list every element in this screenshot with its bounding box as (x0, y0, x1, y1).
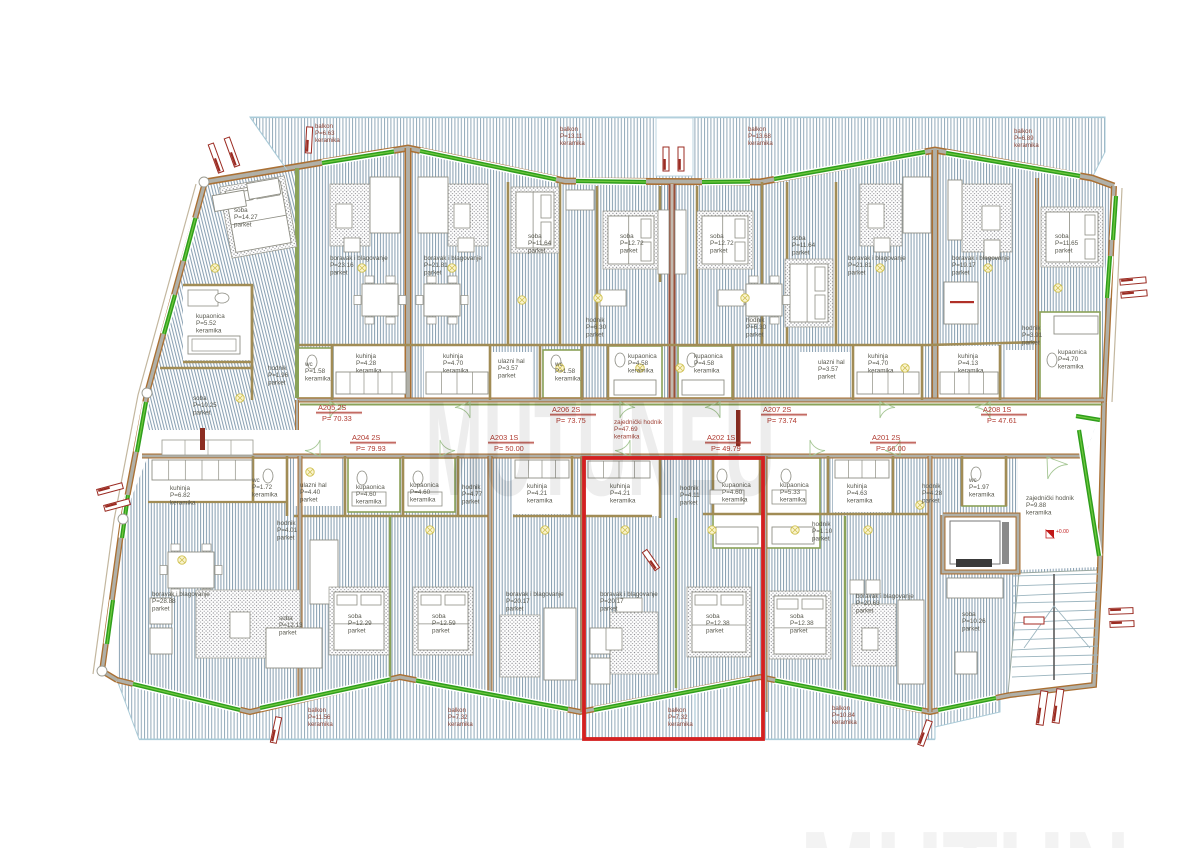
svg-text:P= 79.93: P= 79.93 (356, 444, 386, 453)
svg-text:A208 1S: A208 1S (983, 405, 1011, 414)
svg-text:+0.00: +0.00 (1056, 529, 1069, 535)
svg-text:A205 2S: A205 2S (318, 403, 346, 412)
svg-text:A204 2S: A204 2S (352, 433, 380, 442)
svg-text:P= 66.00: P= 66.00 (876, 444, 906, 453)
svg-text:P= 70.33: P= 70.33 (322, 414, 352, 423)
svg-text:A201 2S: A201 2S (872, 433, 900, 442)
svg-text:P= 47.61: P= 47.61 (987, 416, 1017, 425)
svg-text:MUTUN: MUTUN (800, 803, 1130, 848)
svg-text:MUTUNEU: MUTUNEU (425, 373, 775, 524)
